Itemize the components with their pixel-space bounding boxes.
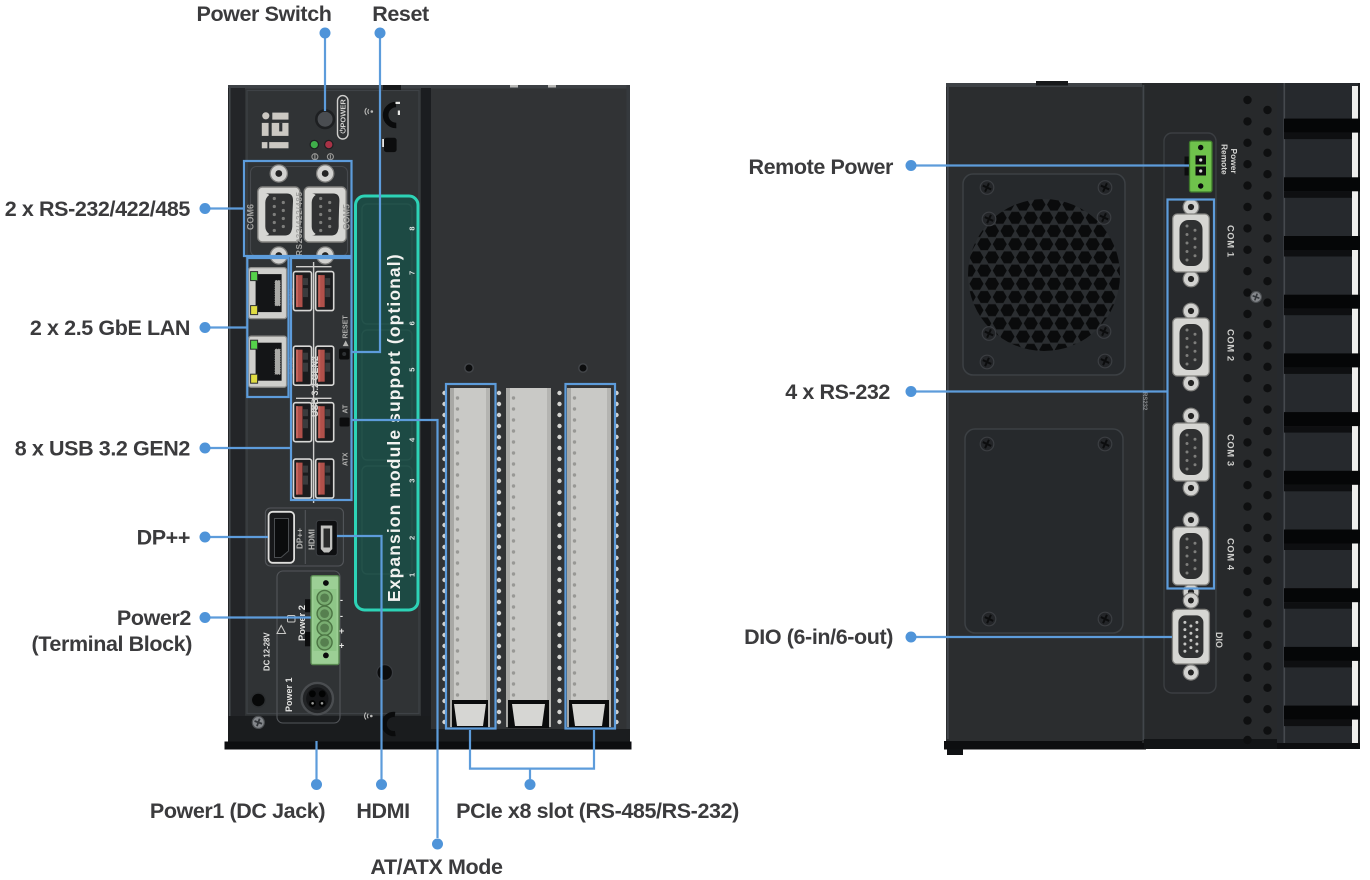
svg-text:7: 7 [408,271,417,275]
svg-text:DP++: DP++ [137,526,190,550]
svg-text:AT: AT [343,404,350,414]
svg-text:3: 3 [408,479,417,483]
svg-text:Remote Power: Remote Power [748,155,894,179]
svg-text:HDMI: HDMI [308,529,317,550]
svg-text:COM 2: COM 2 [1226,329,1237,362]
svg-text:ATX: ATX [343,452,350,466]
svg-text:COM 3: COM 3 [1226,434,1237,467]
svg-text:Power 2: Power 2 [296,605,307,641]
svg-text:6: 6 [408,321,417,325]
svg-text:2 x RS-232/422/485: 2 x RS-232/422/485 [5,197,191,221]
svg-text:⏻POWER: ⏻POWER [339,99,348,134]
svg-text:DC 12-28V: DC 12-28V [263,632,272,671]
svg-text:+: + [339,626,344,636]
svg-text:Expansion module support (opti: Expansion module support (optional) [384,253,404,602]
svg-text:AT/ATX Mode: AT/ATX Mode [370,855,503,879]
svg-text:COM6: COM6 [246,204,256,230]
svg-text:RS232: RS232 [1141,392,1147,411]
svg-text:Reset: Reset [372,2,429,26]
svg-text:+: + [339,641,344,651]
svg-text:-: - [340,595,343,605]
svg-text:COM 1: COM 1 [1226,225,1237,258]
svg-text:Power1 (DC Jack): Power1 (DC Jack) [150,799,325,823]
svg-text:8 x USB 3.2 GEN2: 8 x USB 3.2 GEN2 [15,437,191,461]
svg-text:Power Switch: Power Switch [197,2,332,26]
svg-text:5: 5 [408,368,417,372]
svg-text:HDMI: HDMI [356,799,409,823]
svg-text:Power2: Power2 [117,606,192,630]
svg-text:Remote: Remote [1220,144,1230,175]
svg-text:(Terminal Block): (Terminal Block) [32,632,193,656]
svg-text:PCIe x8 slot (RS-485/RS-232): PCIe x8 slot (RS-485/RS-232) [456,799,739,823]
svg-text:USB 3.2 GEN2: USB 3.2 GEN2 [310,356,320,417]
svg-text:Power: Power [1229,149,1239,175]
svg-text:DIO (6-in/6-out): DIO (6-in/6-out) [744,625,893,649]
svg-text:COM5: COM5 [342,204,352,230]
svg-text:DP++: DP++ [296,528,305,549]
svg-text:2 x 2.5 GbE LAN: 2 x 2.5 GbE LAN [30,316,190,340]
svg-text:▶ RESET: ▶ RESET [343,315,350,347]
svg-text:DIO: DIO [1214,632,1224,648]
svg-text:1: 1 [408,573,417,577]
svg-text:RS232/422/485: RS232/422/485 [295,191,304,256]
svg-text:2: 2 [408,536,417,540]
svg-text:Power 1: Power 1 [284,677,294,712]
svg-text:-: - [340,611,343,621]
svg-text:8: 8 [408,226,417,230]
svg-text:COM 4: COM 4 [1226,538,1237,571]
svg-text:4 x RS-232: 4 x RS-232 [785,380,890,404]
